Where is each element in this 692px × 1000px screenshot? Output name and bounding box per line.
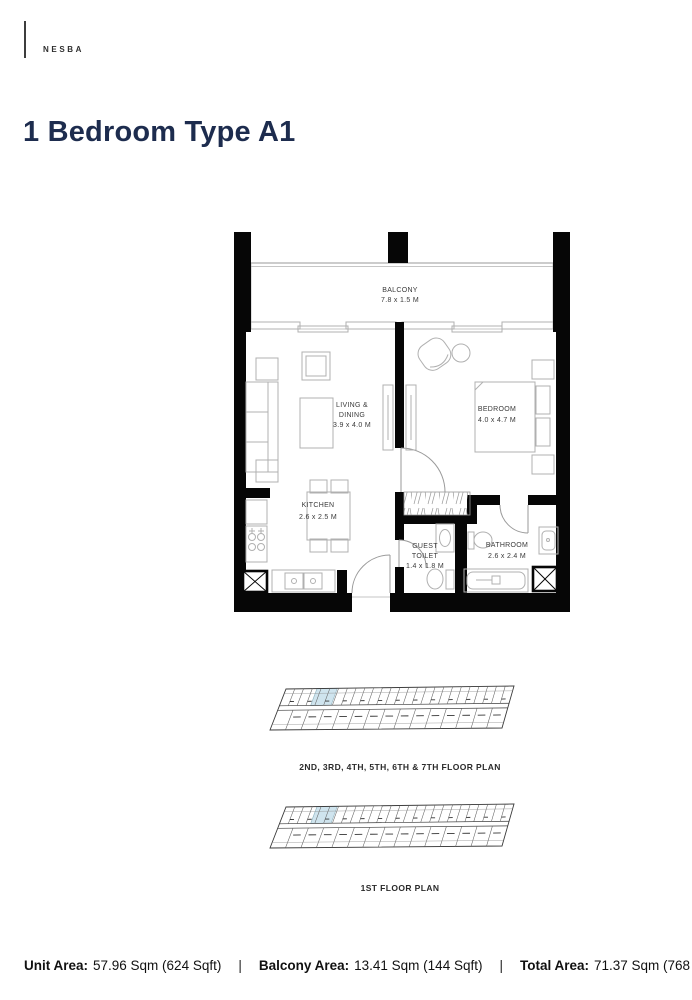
balcony-railing (251, 263, 553, 329)
room-dims-bedroom: 4.0 x 4.7 M (478, 417, 516, 424)
footer-separator-2: | (499, 958, 503, 973)
building-plan-first-caption: 1ST FLOOR PLAN (230, 883, 570, 893)
unit-area-label: Unit Area: (24, 958, 88, 973)
unit-area: Unit Area: 57.96 Sqm (624 Sqft) (24, 958, 221, 973)
building-plan-upper-caption: 2ND, 3RD, 4TH, 5TH, 6TH & 7TH FLOOR PLAN (230, 762, 570, 772)
floor-plan-sheet: NESBA 1 Bedroom Type A1 (0, 0, 692, 1000)
balcony-area-label: Balcony Area: (259, 958, 349, 973)
bathroom-door (500, 505, 528, 533)
footer-separator-1: | (238, 958, 242, 973)
total-area-value: 71.37 Sqm (768 Sqft) (594, 958, 692, 973)
page-title: 1 Bedroom Type A1 (23, 116, 296, 149)
room-label-living-2: DINING (339, 412, 365, 419)
unit-area-value: 57.96 Sqm (624 Sqft) (93, 958, 221, 973)
room-label-bedroom: BEDROOM (478, 406, 516, 413)
total-area-label: Total Area: (520, 958, 589, 973)
unit-floor-plan: BALCONY 7.8 x 1.5 M LIVING & DINING 3.9 … (230, 230, 572, 615)
brand-mark-line (24, 21, 26, 58)
bedroom-door (401, 448, 445, 492)
brand-logo-text: NESBA (43, 45, 84, 54)
room-dims-living: 3.9 x 4.0 M (333, 422, 371, 429)
room-label-balcony: BALCONY (382, 287, 418, 294)
bedroom-furniture (414, 334, 554, 474)
room-dims-guest-toilet: 1.4 x 1.8 M (406, 563, 444, 570)
room-label-guest-toilet-1: GUEST (412, 543, 438, 550)
entrance-door (352, 555, 390, 597)
balcony-area: Balcony Area: 13.41 Sqm (144 Sqft) (259, 958, 483, 973)
wardrobe (404, 492, 470, 515)
room-label-living-1: LIVING & (336, 402, 368, 409)
room-label-kitchen: KITCHEN (302, 502, 335, 509)
area-summary-bar: Unit Area: 57.96 Sqm (624 Sqft) | Balcon… (24, 958, 672, 973)
building-plan-first-floor (253, 802, 543, 864)
room-dims-kitchen: 2.6 x 2.5 M (299, 514, 337, 521)
room-label-guest-toilet-2: TOILET (412, 553, 439, 560)
living-room-furniture (246, 352, 416, 482)
room-dims-balcony: 7.8 x 1.5 M (381, 297, 419, 304)
total-area: Total Area: 71.37 Sqm (768 Sqft) (520, 958, 692, 973)
balcony-area-value: 13.41 Sqm (144 Sqft) (354, 958, 482, 973)
room-dims-bathroom: 2.6 x 2.4 M (488, 553, 526, 560)
building-plan-upper-floors (253, 684, 543, 746)
room-label-bathroom: BATHROOM (486, 542, 528, 549)
